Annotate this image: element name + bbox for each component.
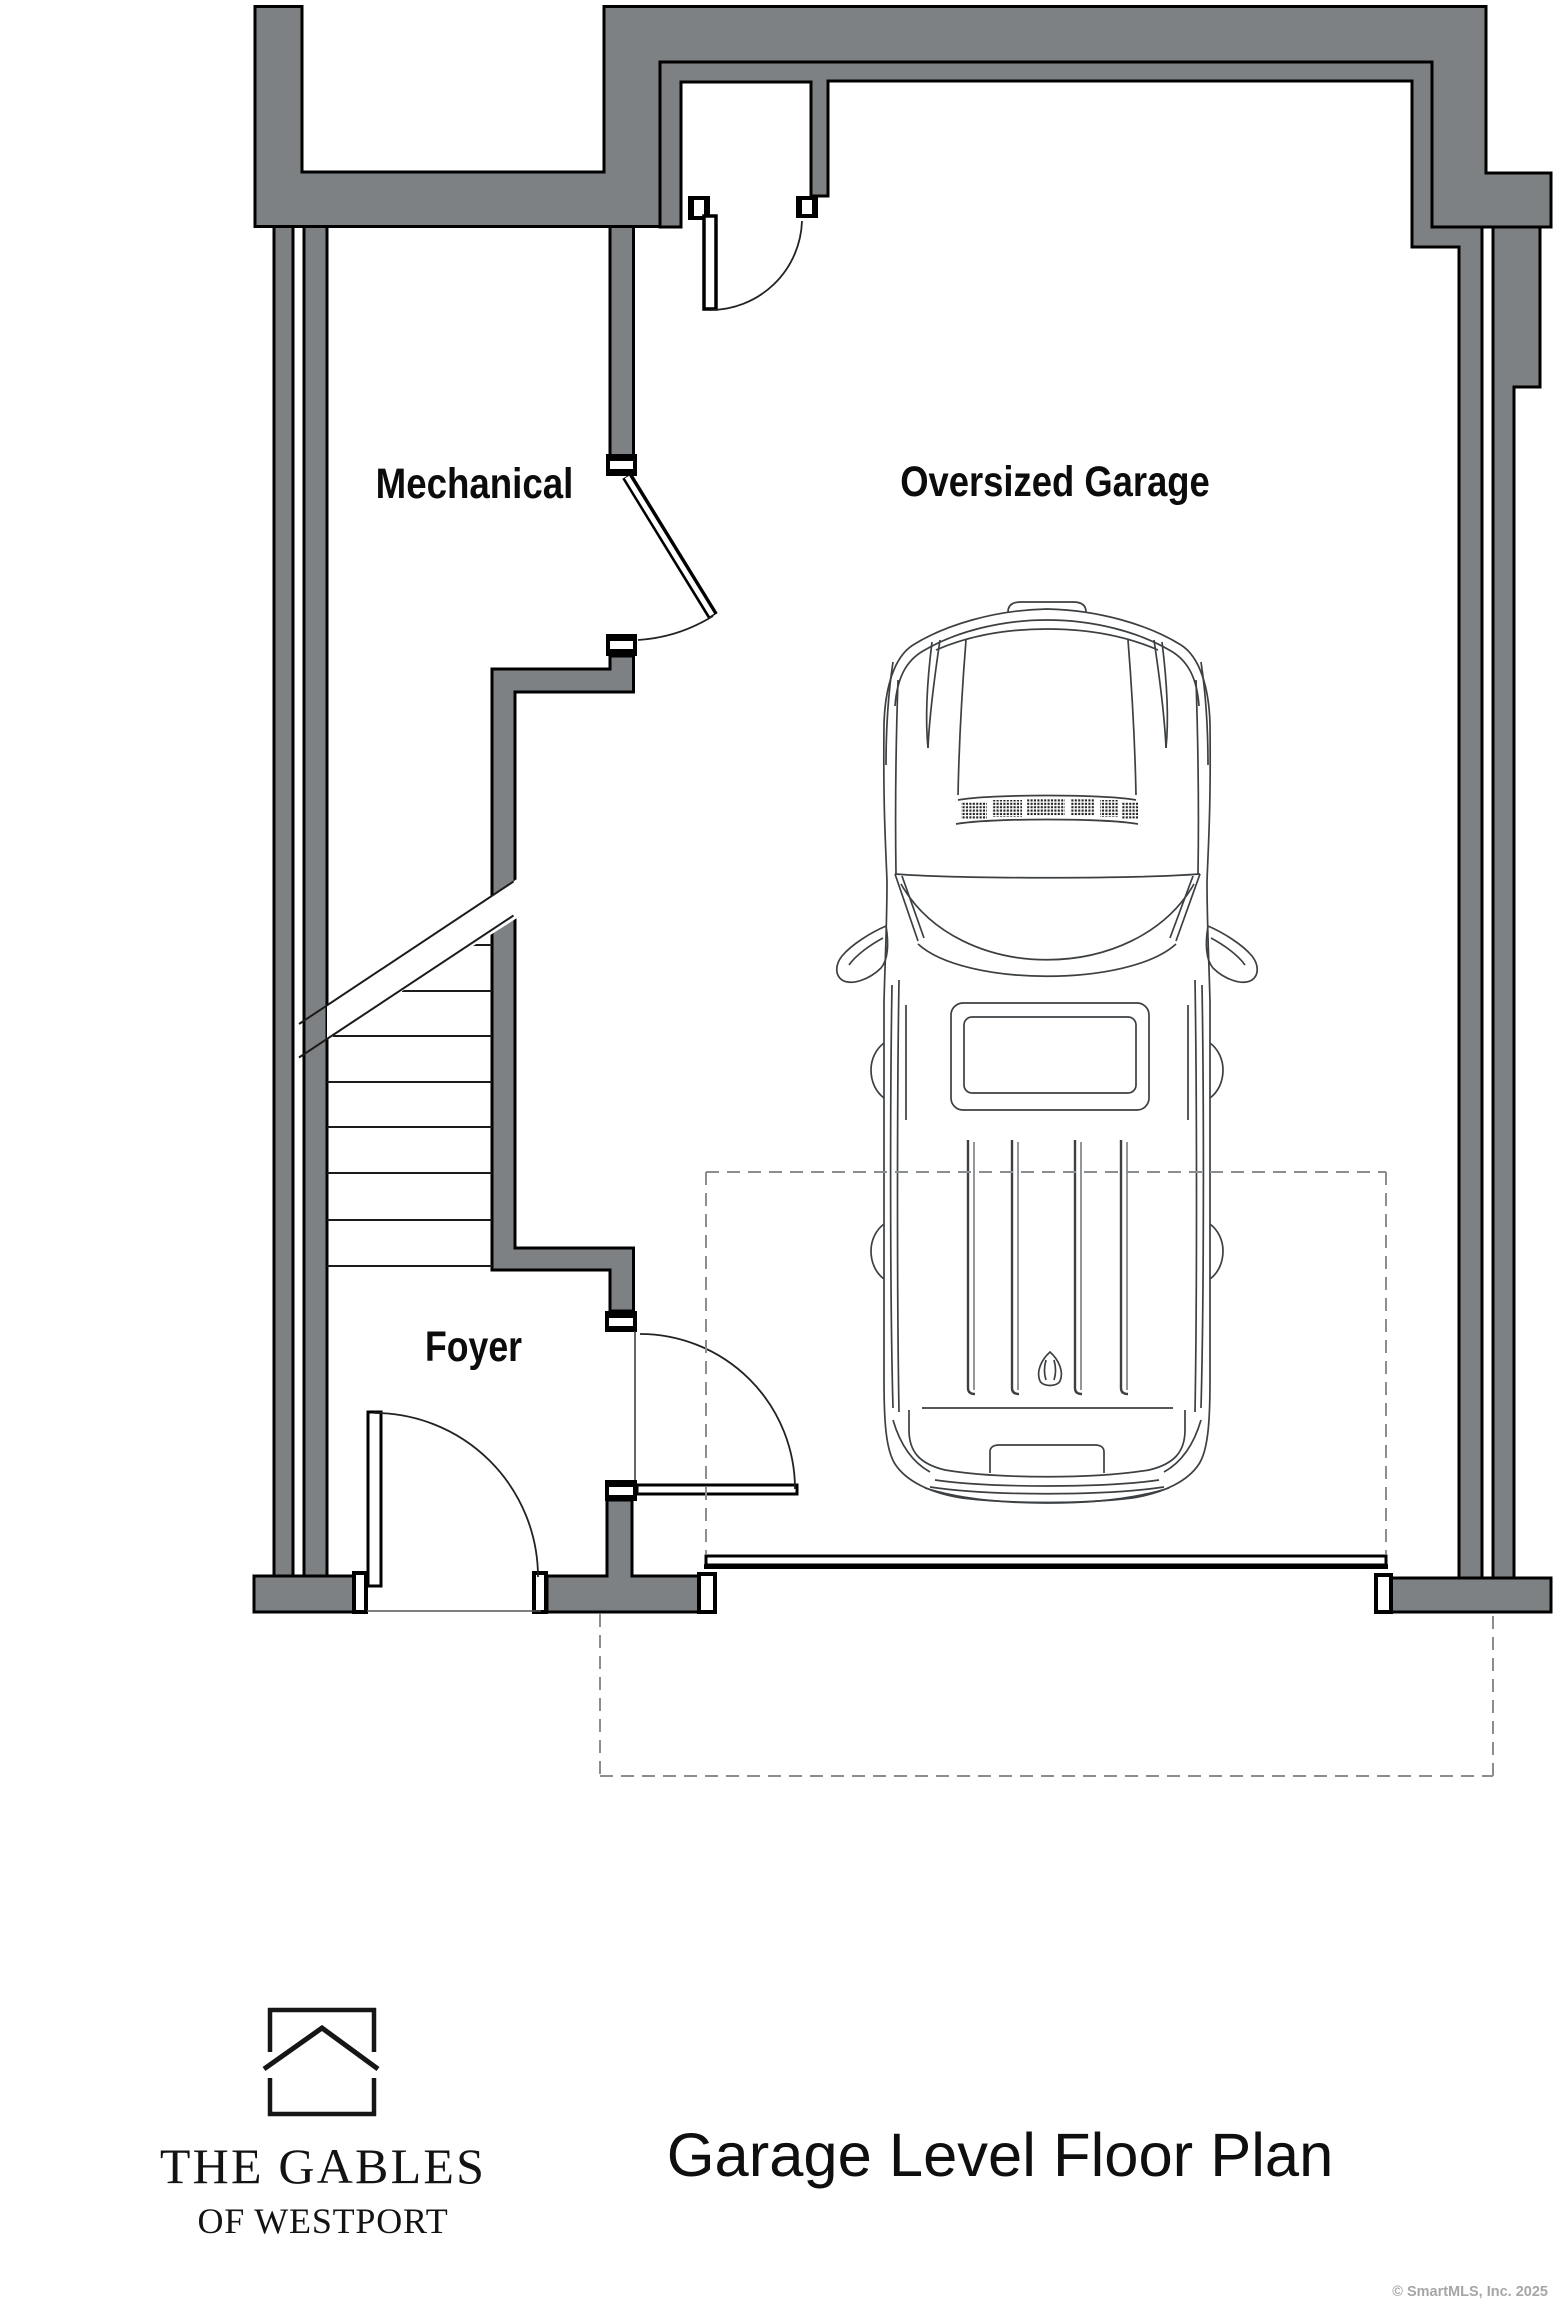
svg-text:Mechanical: Mechanical bbox=[376, 460, 574, 507]
svg-text:© SmartMLS, Inc. 2025: © SmartMLS, Inc. 2025 bbox=[1392, 2284, 1548, 2300]
svg-text:Garage Level Floor Plan: Garage Level Floor Plan bbox=[667, 2121, 1334, 2190]
svg-text:Foyer: Foyer bbox=[425, 1323, 522, 1371]
svg-text:THE GABLES: THE GABLES bbox=[160, 2138, 486, 2194]
svg-text:Oversized Garage: Oversized Garage bbox=[900, 458, 1210, 505]
svg-text:OF WESTPORT: OF WESTPORT bbox=[197, 2201, 448, 2241]
